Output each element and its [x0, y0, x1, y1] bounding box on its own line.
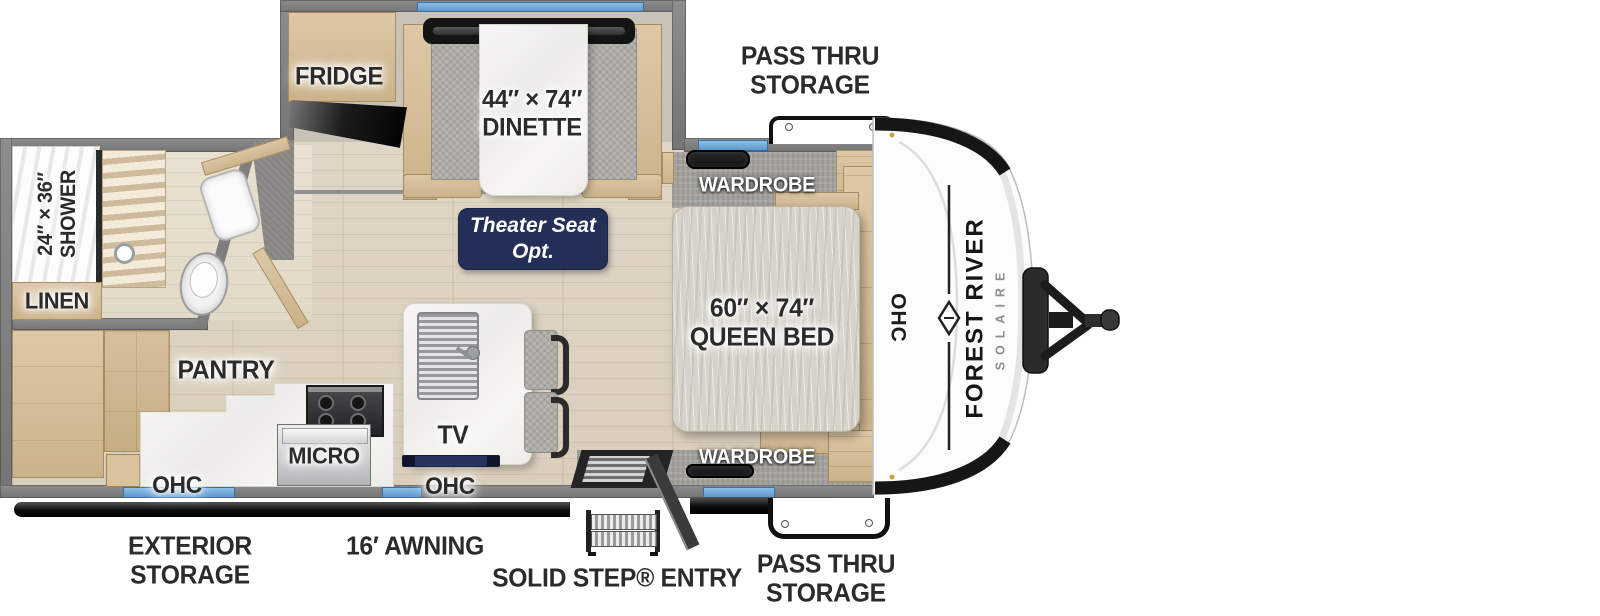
front-cap-ohc-label: OHC	[886, 293, 909, 343]
label-queen-bed: 60″ × 74″QUEEN BED	[690, 293, 834, 350]
entry-step-treads	[582, 456, 649, 482]
stool-arm	[551, 335, 569, 395]
step-foot	[650, 552, 658, 556]
label-linen: LINEN	[25, 288, 89, 313]
shower-drain	[114, 243, 135, 264]
awning-rail	[14, 502, 570, 517]
rear-bench	[12, 330, 104, 478]
stove-rail	[308, 387, 382, 392]
label-exterior-storage: EXTERIORSTORAGE	[128, 531, 252, 588]
label-fridge: FRIDGE	[295, 63, 383, 91]
label-ohc-left: OHC	[152, 473, 202, 499]
label-ohc-kitchen: OHC	[425, 474, 475, 500]
step-foot	[588, 552, 596, 556]
theater-seat-option-badge: Theater Seat Opt.	[458, 208, 608, 270]
stool-arm	[551, 397, 569, 458]
cap-screw	[890, 133, 895, 138]
badge-line-2: Opt.	[459, 239, 607, 265]
label-awning: 16′ AWNING	[346, 532, 484, 561]
solid-step	[586, 510, 660, 556]
screw	[865, 519, 873, 527]
slideout-wall-right	[672, 0, 686, 150]
front-cap: OHC FOREST RIVER SOLAIRE	[845, 98, 1135, 508]
cap-screw	[890, 475, 895, 480]
shower-door	[102, 150, 166, 288]
toilet-lid	[187, 260, 221, 300]
faucet	[466, 346, 480, 360]
badge-line-1: Theater Seat	[459, 213, 607, 239]
burner	[350, 395, 366, 411]
dinette-side-cap	[662, 152, 674, 184]
hitch-coupler	[1101, 310, 1119, 330]
screw	[785, 123, 793, 131]
screw	[781, 520, 789, 528]
label-wardrobe-top: WARDROBE	[699, 173, 815, 196]
label-pantry: PANTRY	[177, 356, 274, 385]
front-cap-brand: FOREST RIVER	[961, 217, 988, 418]
label-entry: SOLID STEP® ENTRY	[492, 564, 742, 593]
step-tread	[591, 514, 657, 530]
label-shower: 24″ × 36″SHOWER	[34, 170, 80, 258]
bar-stool	[524, 392, 558, 453]
hitch	[1023, 268, 1119, 373]
label-wardrobe-bottom: WARDROBE	[699, 445, 815, 468]
label-dinette: 44″ × 74″DINETTE	[482, 87, 582, 142]
front-cap-model: SOLAIRE	[993, 266, 1007, 371]
label-micro: MICRO	[288, 443, 359, 468]
burner	[318, 395, 334, 411]
bar-stool	[524, 330, 558, 390]
bottom-window-2	[382, 487, 422, 498]
label-pass-thru-storage-bottom: PASS THRUSTORAGE	[757, 549, 895, 606]
wardrobe-vent-top	[686, 150, 750, 169]
rear-wall	[0, 138, 12, 498]
step-tread	[591, 531, 657, 547]
slideout-window	[417, 2, 644, 12]
label-pass-thru-storage-top: PASS THRUSTORAGE	[741, 41, 879, 98]
label-tv: TV	[438, 421, 469, 450]
tv-unit	[402, 455, 500, 467]
rv-floorplan-canvas: OHC FOREST RIVER SOLAIRE Theater Seat Op…	[0, 0, 1600, 616]
dinette-cushion-left	[431, 28, 484, 180]
dinette-cushion-right	[584, 28, 637, 180]
